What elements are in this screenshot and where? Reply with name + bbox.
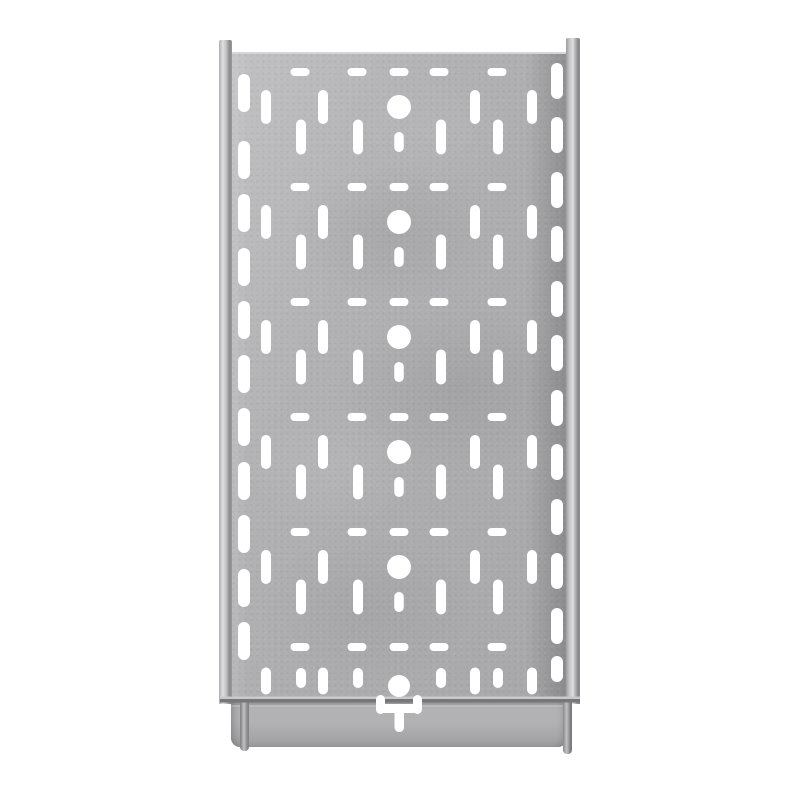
right-end-tab — [563, 700, 572, 754]
right-side-rail — [566, 38, 580, 704]
left-side-rail — [219, 40, 232, 704]
product-image — [0, 0, 800, 800]
left-end-tab — [240, 700, 249, 751]
tray-floor-panel — [232, 52, 566, 700]
bottom-end-flange — [231, 702, 567, 747]
